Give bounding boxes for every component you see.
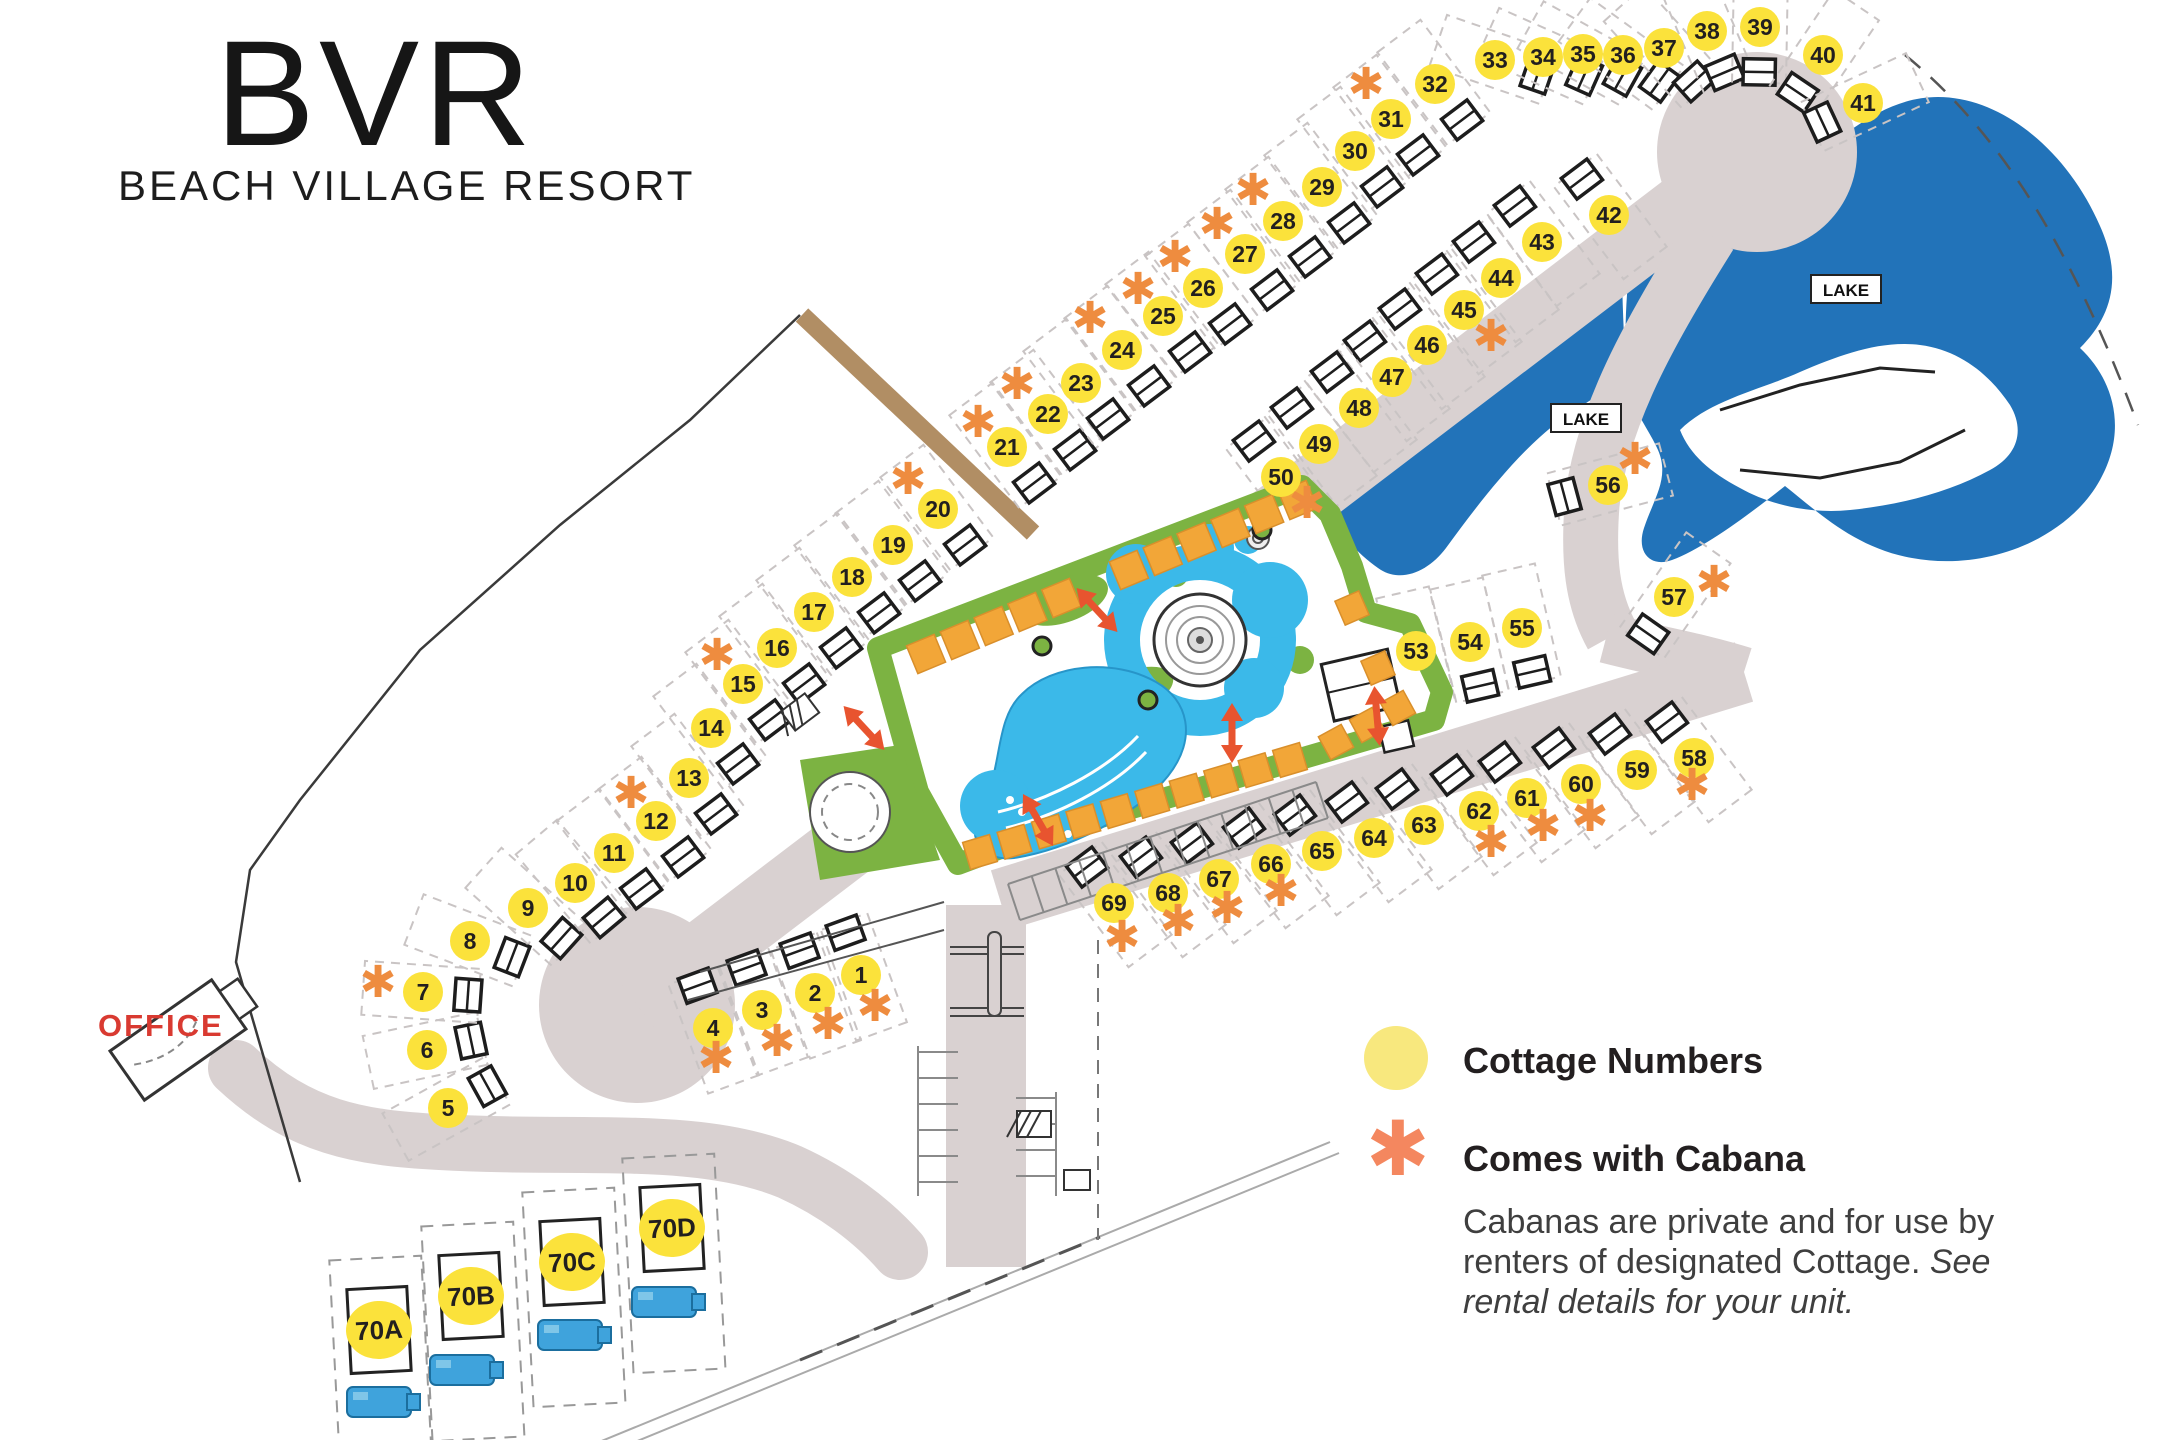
cabana-asterisk-icon: ✱ [1209,883,1246,934]
rv-lot: 70D [622,1154,725,1374]
cottage-marker: 38 [1687,11,1727,51]
cottage-number: 29 [1309,174,1335,200]
legend-cabana-label: Comes with Cabana [1463,1138,1805,1180]
island-shore-line [1740,430,1965,478]
lake-label-text: LAKE [1563,410,1609,429]
cabana-asterisk-icon: ✱ [613,768,650,819]
resort-logo: BVR [215,18,535,168]
cabana-asterisk-icon: ✱ [1617,434,1654,485]
cottage-marker: 6 [407,1030,447,1070]
cabana-asterisk-icon: ✱ [1235,165,1272,216]
cottage-number: 38 [1694,18,1720,44]
cottage-number: 34 [1530,44,1556,70]
cottage-marker: 33 [1475,40,1515,80]
cabana-asterisk-icon: ✱ [1348,59,1385,110]
cottage-marker: 49 [1299,424,1339,464]
cottage-marker: 59 [1617,750,1657,790]
cottage-number: 21 [994,434,1020,460]
cottage-marker: 40 [1803,35,1843,75]
cabana-asterisk-icon: ✱ [999,359,1036,410]
cottage-number: 64 [1361,825,1387,851]
cottage-marker: 48 [1339,388,1379,428]
cottage-marker: 4✱ [693,1008,734,1084]
cabana-asterisk-icon: ✱ [857,981,894,1032]
cottage-marker: 30 [1335,131,1375,171]
cottage-marker: 15✱ [699,630,763,704]
cottage-number: 49 [1306,431,1332,457]
cottage-marker: 53 [1396,631,1436,671]
cabana-asterisk-icon: ✱ [1572,791,1609,842]
legend-cottage-dot [1364,1026,1428,1090]
cottage-number: 18 [839,564,865,590]
rv-lot-number: 70C [547,1246,596,1278]
cabana-asterisk-icon: ✱ [1120,264,1157,315]
cottage-number: 63 [1411,812,1437,838]
rv-lot-number: 70A [354,1314,403,1346]
cottage-marker: 55 [1502,608,1542,648]
cabana-asterisk-icon: ✱ [698,1033,735,1084]
cottage-number: 65 [1309,838,1335,864]
cottage-marker: 34 [1523,37,1563,77]
lake-label-text: LAKE [1823,281,1869,300]
camper-icon [347,1387,420,1417]
rv-lot: 70B [421,1222,524,1440]
cottage-marker: 39 [1740,7,1780,47]
cottage-number: 59 [1624,757,1650,783]
legend-note-regular: Cabanas are private and for use by rente… [1463,1203,1994,1281]
cabana-asterisk-icon: ✱ [699,630,736,681]
cottage-number: 42 [1596,202,1622,228]
cottage-number: 47 [1379,364,1405,390]
cabana-asterisk-icon: ✱ [1160,896,1197,947]
cabana-asterisk-icon: ✱ [1525,801,1562,852]
cottage-marker: 18 [832,557,872,597]
camper-icon [430,1355,503,1385]
cottage-number: 16 [764,635,790,661]
cottage-number: 9 [522,895,535,921]
legend-cabana-asterisk-icon: ✱ [1366,1112,1430,1188]
cabana-asterisk-icon: ✱ [1674,760,1711,811]
cottage-marker: 64 [1354,818,1394,858]
cottage-marker: 1✱ [841,955,893,1032]
cottage-number: 14 [698,715,724,741]
cottage-number: 24 [1109,337,1135,363]
cottage-number: 33 [1482,47,1508,73]
cottage-number: 19 [880,532,906,558]
camper-icon [538,1320,611,1350]
cottage-marker: 2✱ [795,973,846,1050]
resort-map: 70A70B70C70D 1✱2✱3✱4✱567✱89101112✱131415… [0,0,2160,1440]
cottage-marker: 68✱ [1148,873,1196,947]
cabana-asterisk-icon: ✱ [1473,817,1510,868]
cabana-asterisk-icon: ✱ [890,454,927,505]
cottage-number: 40 [1810,42,1836,68]
cottage-marker: 19 [873,525,913,565]
cabana-asterisk-icon: ✱ [810,999,847,1050]
cottage-number: 35 [1570,41,1596,67]
cabana-asterisk-icon: ✱ [1199,199,1236,250]
cottage-marker: 69✱ [1094,883,1140,963]
cottage-marker: 63 [1404,805,1444,845]
cottage-marker: 23 [1061,363,1101,403]
cabana-asterisk-icon: ✱ [1157,232,1194,283]
cottage-marker: 17 [794,592,834,632]
cottage-number: 23 [1068,370,1094,396]
cabana-asterisk-icon: ✱ [1696,557,1733,608]
cottage-marker: 42 [1589,195,1629,235]
cabana-asterisk-icon: ✱ [1072,293,1109,344]
cabana-asterisk-icon: ✱ [960,397,997,448]
cottage-marker: 43 [1522,222,1562,262]
cottage-marker: 57✱ [1654,557,1732,617]
cabana-asterisk-icon: ✱ [1473,311,1510,362]
cottage-marker: 10 [555,863,595,903]
cottage-number: 20 [925,496,951,522]
cottage-number: 41 [1850,90,1876,116]
rv-lot-number: 70B [446,1280,495,1312]
camper-icon [632,1287,705,1317]
cottage-marker: 37 [1644,28,1684,68]
legend-note: Cabanas are private and for use by rente… [1463,1202,2023,1322]
rv-lot: 70C [522,1188,625,1408]
cottage-marker: 58✱ [1674,738,1714,811]
legend-cottage-label: Cottage Numbers [1463,1040,1763,1082]
cottage-marker: 54 [1450,622,1490,662]
cottage-number: 53 [1403,638,1429,664]
cottage-number: 17 [801,599,827,625]
resort-subtitle: BEACH VILLAGE RESORT [118,162,695,210]
cottage-number: 27 [1232,241,1258,267]
cottage-marker: 67✱ [1199,859,1245,934]
cabana-asterisk-icon: ✱ [1289,478,1326,529]
cabana-asterisk-icon: ✱ [1263,866,1300,917]
cottage-number: 11 [602,840,627,866]
cottage-marker: 14 [691,708,731,748]
cottage-number: 7 [417,979,430,1005]
cottage-marker: 11 [594,833,634,873]
cottage-marker: 35 [1563,34,1603,74]
cottage-number: 8 [464,928,477,954]
cottage-number: 37 [1651,35,1677,61]
cottage-number: 44 [1488,265,1514,291]
entrance-drive [946,905,1026,1267]
rv-lot-number: 70D [647,1212,696,1244]
cottage-number: 57 [1661,584,1687,610]
cottage-number: 22 [1035,401,1061,427]
cottage-marker: 8 [450,921,490,961]
cottage-marker: 13 [669,758,709,798]
cottage-number: 5 [442,1095,455,1121]
cabana-asterisk-icon: ✱ [1104,912,1141,963]
cottage-number: 6 [421,1037,434,1063]
cabana-asterisk-icon: ✱ [759,1016,796,1067]
lake-label: LAKE [1551,404,1621,432]
cottage-marker: 44 [1481,258,1521,298]
cottage-marker: 62✱ [1459,791,1509,868]
cottage-number: 36 [1610,42,1636,68]
cabana-asterisk-icon: ✱ [360,957,397,1008]
cottage-number: 30 [1342,138,1368,164]
cottage-marker: 60✱ [1561,764,1608,842]
cottage-number: 32 [1422,71,1448,97]
cottage-marker: 46 [1407,325,1447,365]
cottage-marker: 65 [1302,831,1342,871]
cottage-marker: 36 [1603,35,1643,75]
cottage-marker: 29 [1302,167,1342,207]
cottage-number: 48 [1346,395,1372,421]
cottage-number: 39 [1747,14,1773,40]
cottage-marker: 5 [428,1088,468,1128]
cottage-number: 28 [1270,208,1296,234]
cottage-marker: 16 [757,628,797,668]
cottage-marker: 22✱ [999,359,1068,434]
cottage-marker: 12✱ [613,768,676,841]
cottage-number: 13 [676,765,702,791]
cottage-number: 46 [1414,332,1440,358]
legend: Cottage Numbers ✱ Comes with Cabana Caba… [1364,1026,1428,1090]
cottage-number: 55 [1509,615,1535,641]
cottage-number: 54 [1457,629,1483,655]
cottage-number: 10 [562,870,588,896]
cottage-marker: 9 [508,888,548,928]
cottage-marker: 41 [1843,83,1883,123]
lake-label: LAKE [1811,275,1881,303]
cottage-marker: 20✱ [890,454,958,529]
office-label: OFFICE [98,1008,224,1044]
cottage-number: 26 [1190,275,1216,301]
cottage-number: 43 [1529,229,1555,255]
cottage-marker: 47 [1372,357,1412,397]
cottage-marker: 28✱ [1235,165,1303,241]
